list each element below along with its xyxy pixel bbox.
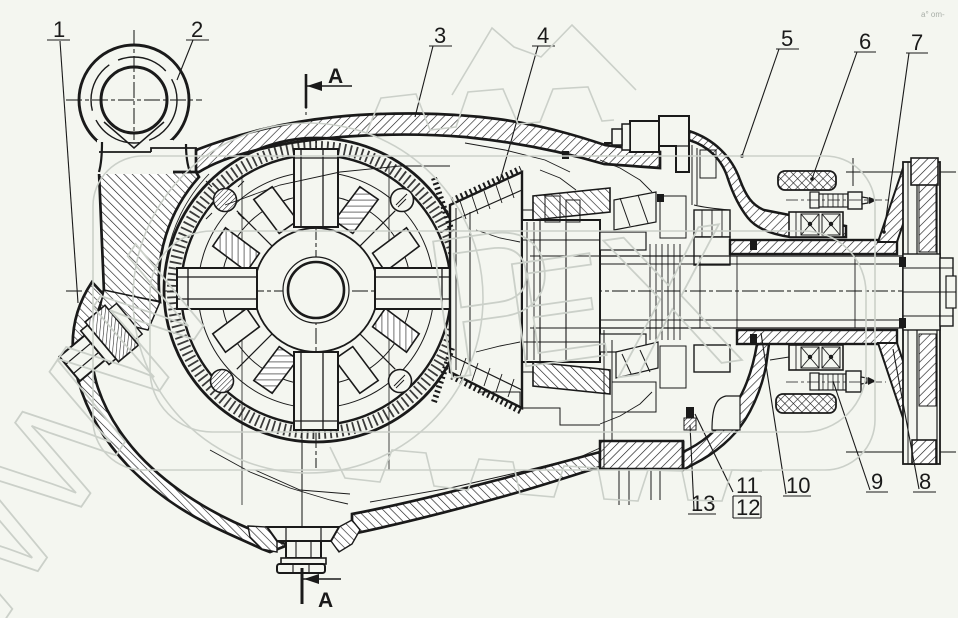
svg-text:12: 12 [736,495,760,520]
svg-text:9: 9 [871,469,883,494]
svg-text:6: 6 [859,29,871,54]
svg-text:5: 5 [781,26,793,51]
svg-text:4: 4 [537,23,549,48]
svg-text:a° om-: a° om- [921,10,945,19]
svg-text:A: A [318,589,333,612]
svg-text:7: 7 [911,30,923,55]
svg-text:1: 1 [53,17,65,42]
svg-text:A: A [328,65,343,88]
svg-text:2: 2 [191,17,203,42]
svg-text:10: 10 [786,473,810,498]
svg-text:13: 13 [691,491,715,516]
svg-text:8: 8 [919,469,931,494]
svg-text:3: 3 [434,23,446,48]
